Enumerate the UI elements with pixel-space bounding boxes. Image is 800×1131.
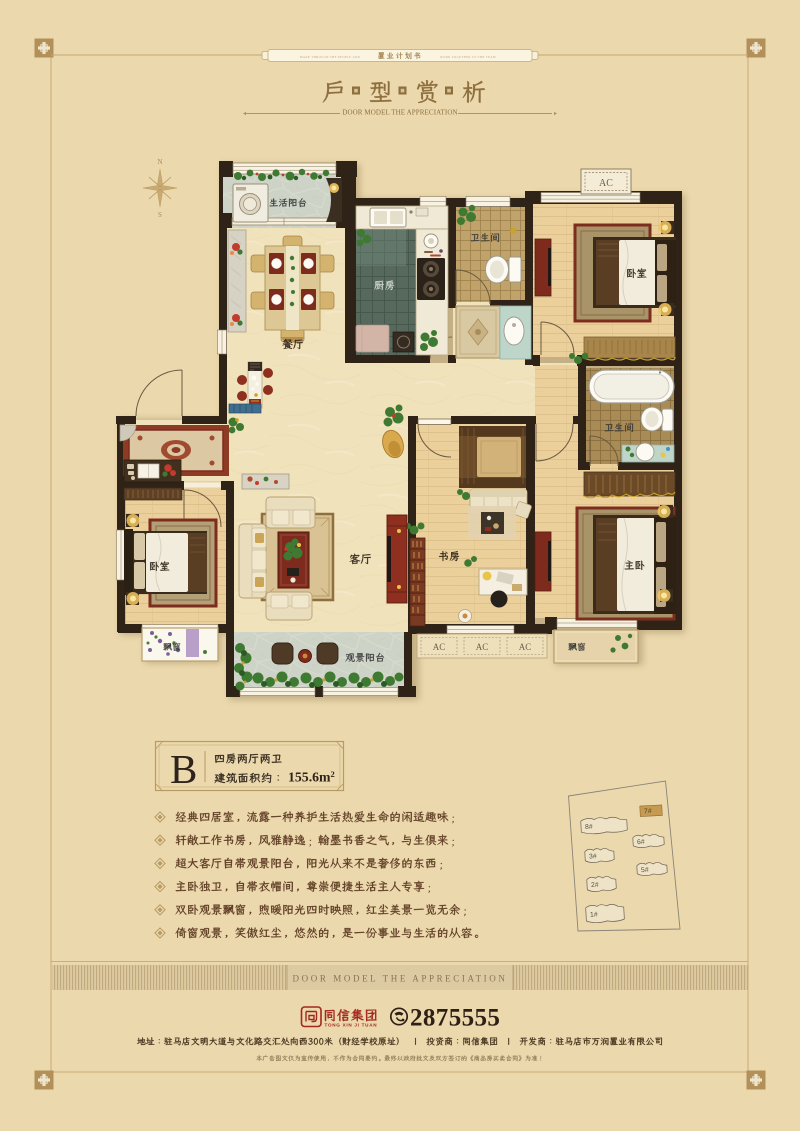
svg-text:DOOR MODEL THE APPRECIATION: DOOR MODEL THE APPRECIATION xyxy=(342,109,457,117)
svg-text:N: N xyxy=(157,158,162,166)
svg-text:2875555: 2875555 xyxy=(410,1005,500,1032)
svg-text:DOOR MODEL THE APPRECIATION: DOOR MODEL THE APPRECIATION xyxy=(293,974,508,984)
svg-text:155.6m2: 155.6m2 xyxy=(288,769,335,785)
svg-text:AC: AC xyxy=(433,642,446,652)
svg-text:MAKE THROUGH THE PEOPLE AND: MAKE THROUGH THE PEOPLE AND xyxy=(300,55,361,59)
svg-text:2#: 2# xyxy=(591,882,599,889)
svg-text:8#: 8# xyxy=(585,824,593,831)
svg-text:AC: AC xyxy=(476,642,489,652)
svg-text:3#: 3# xyxy=(589,853,597,860)
svg-text:B: B xyxy=(170,746,197,792)
svg-text:TONG XIN JI TUAN: TONG XIN JI TUAN xyxy=(325,1023,378,1028)
svg-text:S: S xyxy=(158,211,162,219)
svg-text:7#: 7# xyxy=(644,808,652,815)
svg-text:AC: AC xyxy=(519,642,532,652)
svg-text:WORK TOGETHER TO THE TEAM: WORK TOGETHER TO THE TEAM xyxy=(440,55,496,59)
svg-text:AC: AC xyxy=(599,178,613,189)
svg-text:1#: 1# xyxy=(590,911,598,918)
svg-text:5#: 5# xyxy=(641,867,649,874)
svg-text:6#: 6# xyxy=(637,839,645,846)
